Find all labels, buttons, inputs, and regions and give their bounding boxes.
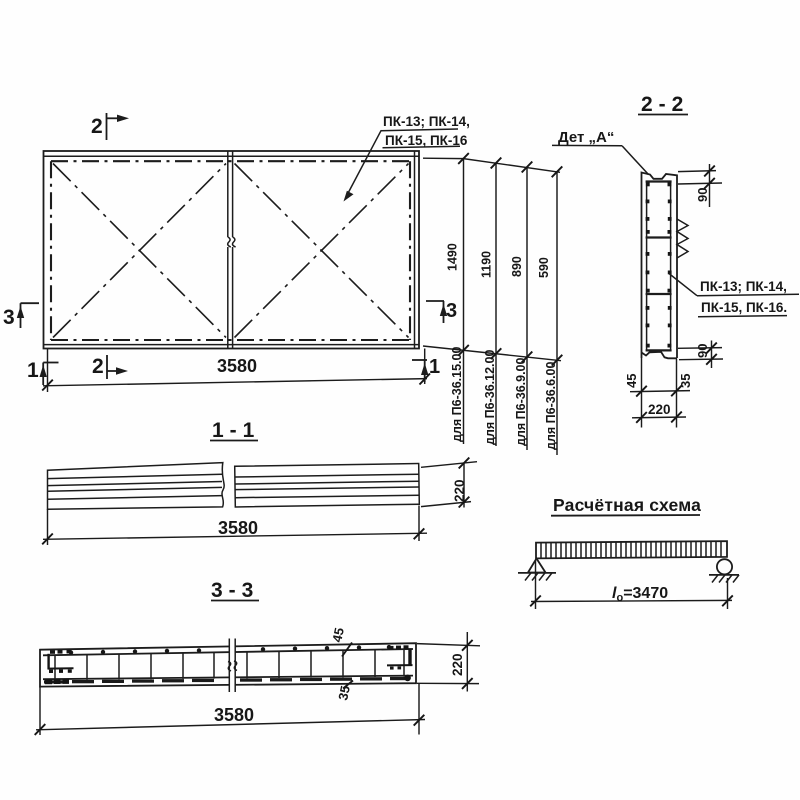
svg-text:3580: 3580 <box>217 356 257 376</box>
svg-text:для П6-36.12.00: для П6-36.12.00 <box>483 350 497 445</box>
svg-text:2: 2 <box>92 355 104 378</box>
svg-text:Расчётная схема: Расчётная схема <box>553 495 701 515</box>
svg-text:ПК-13; ПК-14,: ПК-13; ПК-14, <box>383 114 470 129</box>
svg-text:35: 35 <box>678 374 693 388</box>
svg-text:3: 3 <box>3 306 15 329</box>
svg-text:1-1: 1-1 <box>212 419 260 442</box>
svg-text:2-2: 2-2 <box>641 93 689 116</box>
svg-text:3580: 3580 <box>214 705 254 725</box>
svg-text:3580: 3580 <box>218 518 258 538</box>
svg-text:890: 890 <box>510 256 524 277</box>
svg-text:1: 1 <box>27 359 39 382</box>
svg-text:для П6-36.6.00: для П6-36.6.00 <box>544 362 558 450</box>
svg-text:для П6-36.9.00: для П6-36.9.00 <box>514 358 528 446</box>
svg-text:220: 220 <box>452 479 467 502</box>
svg-text:1190: 1190 <box>480 251 494 278</box>
svg-text:3-3: 3-3 <box>211 579 259 602</box>
svg-text:Дет „А“: Дет „А“ <box>558 129 614 146</box>
svg-text:для П6-36.15.00: для П6-36.15.00 <box>450 347 464 442</box>
svg-text:90: 90 <box>695 188 710 202</box>
svg-text:1490: 1490 <box>446 243 460 271</box>
svg-text:2: 2 <box>91 115 103 138</box>
svg-text:ПК-13; ПК-14,: ПК-13; ПК-14, <box>700 279 787 294</box>
svg-text:45: 45 <box>624 374 639 388</box>
svg-text:3: 3 <box>446 300 457 322</box>
svg-text:1: 1 <box>429 356 440 378</box>
svg-text:220: 220 <box>450 653 465 676</box>
svg-text:45: 45 <box>329 626 347 643</box>
svg-text:90: 90 <box>695 344 710 358</box>
svg-text:590: 590 <box>537 257 551 278</box>
svg-text:220: 220 <box>648 402 671 417</box>
svg-text:ПК-15, ПК-16.: ПК-15, ПК-16. <box>701 300 787 315</box>
